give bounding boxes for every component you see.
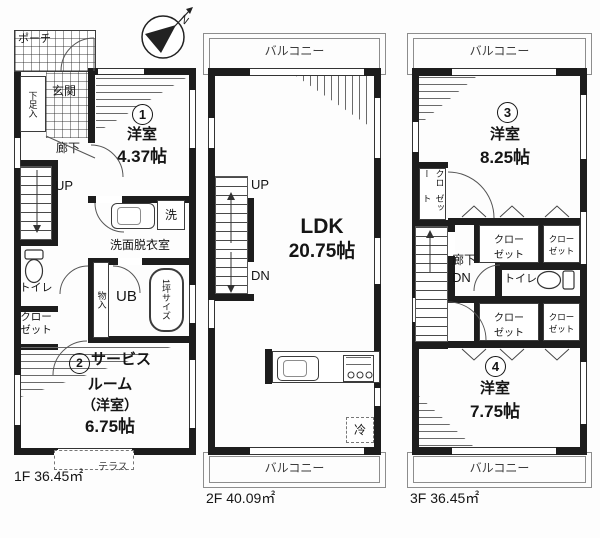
- window: [412, 122, 419, 152]
- stairs-up-label: UP: [251, 177, 269, 193]
- room-number-circle: 4: [485, 356, 506, 377]
- room-number-circle: 3: [497, 102, 518, 123]
- shoe-cabinet: 下足入: [20, 76, 46, 132]
- wall: [265, 349, 272, 384]
- window: [14, 138, 21, 168]
- closet: クローゼット: [543, 303, 580, 341]
- wall: [448, 341, 587, 348]
- north-label: N: [177, 13, 191, 27]
- window: [580, 362, 587, 424]
- hallway-label: 廊下: [56, 141, 80, 156]
- window: [250, 447, 364, 455]
- closet-label: クローゼット: [14, 311, 58, 337]
- entrance-tile-hatch: [46, 72, 88, 138]
- window: [14, 375, 21, 425]
- storage-label: 物入: [93, 262, 109, 338]
- door-opening: [118, 258, 142, 265]
- window: [189, 285, 196, 323]
- staircase: [415, 226, 448, 342]
- wall: [448, 218, 587, 225]
- bath-label: UB: [116, 288, 137, 307]
- window: [374, 388, 381, 406]
- stairs-down-label: DN: [251, 268, 270, 284]
- floor3-area-label: 3F 36.45㎡: [410, 490, 479, 508]
- staircase: [215, 176, 248, 294]
- room4-size: 7.75帖: [430, 401, 560, 422]
- staircase: [20, 166, 52, 240]
- window: [189, 90, 196, 148]
- window: [208, 300, 215, 328]
- wall: [495, 263, 587, 270]
- window: [580, 212, 587, 264]
- room-number-circle: 2: [69, 353, 90, 374]
- wall: [448, 296, 587, 303]
- balcony-label: バルコニー: [203, 461, 386, 476]
- toilet-fixture-3f: [538, 271, 575, 289]
- washroom-label: 洗面脱衣室: [90, 238, 190, 253]
- stairs-up-label: UP: [55, 178, 73, 194]
- room3-name: 洋室: [440, 126, 570, 145]
- window: [208, 118, 215, 148]
- balcony-label: バルコニー: [407, 44, 592, 59]
- closet: クローゼット: [479, 303, 539, 341]
- washer-label: 洗: [157, 200, 185, 230]
- stairs-down-label: DN: [452, 270, 471, 286]
- window: [250, 68, 364, 76]
- fridge-label: 冷: [346, 417, 374, 443]
- window: [98, 68, 144, 75]
- wall: [14, 240, 58, 246]
- north-compass: N: [142, 7, 193, 58]
- terrace-label: テラス: [98, 462, 128, 475]
- bathtub-size-label: 1坪サイズ: [160, 279, 173, 320]
- ldk-name: LDK: [262, 214, 382, 240]
- wall: [248, 198, 254, 262]
- shoe-cabinet-label: 下足入: [27, 91, 40, 118]
- wall: [419, 342, 448, 349]
- stove-grill: [346, 357, 371, 369]
- closet-vertical: クローゼット: [419, 168, 446, 220]
- balcony-label: バルコニー: [407, 461, 592, 476]
- toilet-fixture-1f: [25, 250, 43, 283]
- bathtub: 1坪サイズ: [149, 268, 184, 332]
- room1-name: 洋室: [95, 126, 189, 145]
- window: [452, 68, 556, 76]
- window: [580, 95, 587, 159]
- room3-size: 8.25帖: [440, 147, 570, 168]
- entrance-label: 玄関: [52, 84, 76, 99]
- room2-label-block: 2サービス ルーム （洋室） 6.75帖: [40, 351, 180, 438]
- window: [189, 360, 196, 428]
- hallway-label: 廊下: [452, 253, 476, 268]
- hatch: [419, 77, 476, 125]
- closet: クローゼット: [479, 225, 539, 263]
- sink-basin: [117, 207, 141, 225]
- porch-label: ポーチ: [18, 33, 51, 47]
- sink-basin: [283, 360, 307, 377]
- hatch: [296, 76, 372, 128]
- floorplan-root: 1坪サイズ 下足入 ポーチ 玄関 廊下 UP 1 洋室 4.37帖 洗面脱衣室 …: [0, 0, 600, 538]
- floor2-area-label: 2F 40.09㎡: [206, 490, 275, 508]
- window: [374, 98, 381, 158]
- closet: クローゼット: [543, 225, 580, 263]
- ldk-size: 20.75帖: [262, 240, 382, 264]
- room-number-circle: 1: [132, 104, 153, 125]
- toilet-label: トイレ: [504, 273, 537, 287]
- wall: [88, 68, 95, 143]
- floor1-area-label: 1F 36.45㎡: [14, 468, 83, 486]
- door-opening: [96, 196, 122, 203]
- window: [452, 447, 556, 455]
- balcony-label: バルコニー: [203, 44, 386, 59]
- room4-name: 洋室: [430, 380, 560, 399]
- room1-size: 4.37帖: [95, 146, 189, 167]
- toilet-label: トイレ: [14, 282, 58, 296]
